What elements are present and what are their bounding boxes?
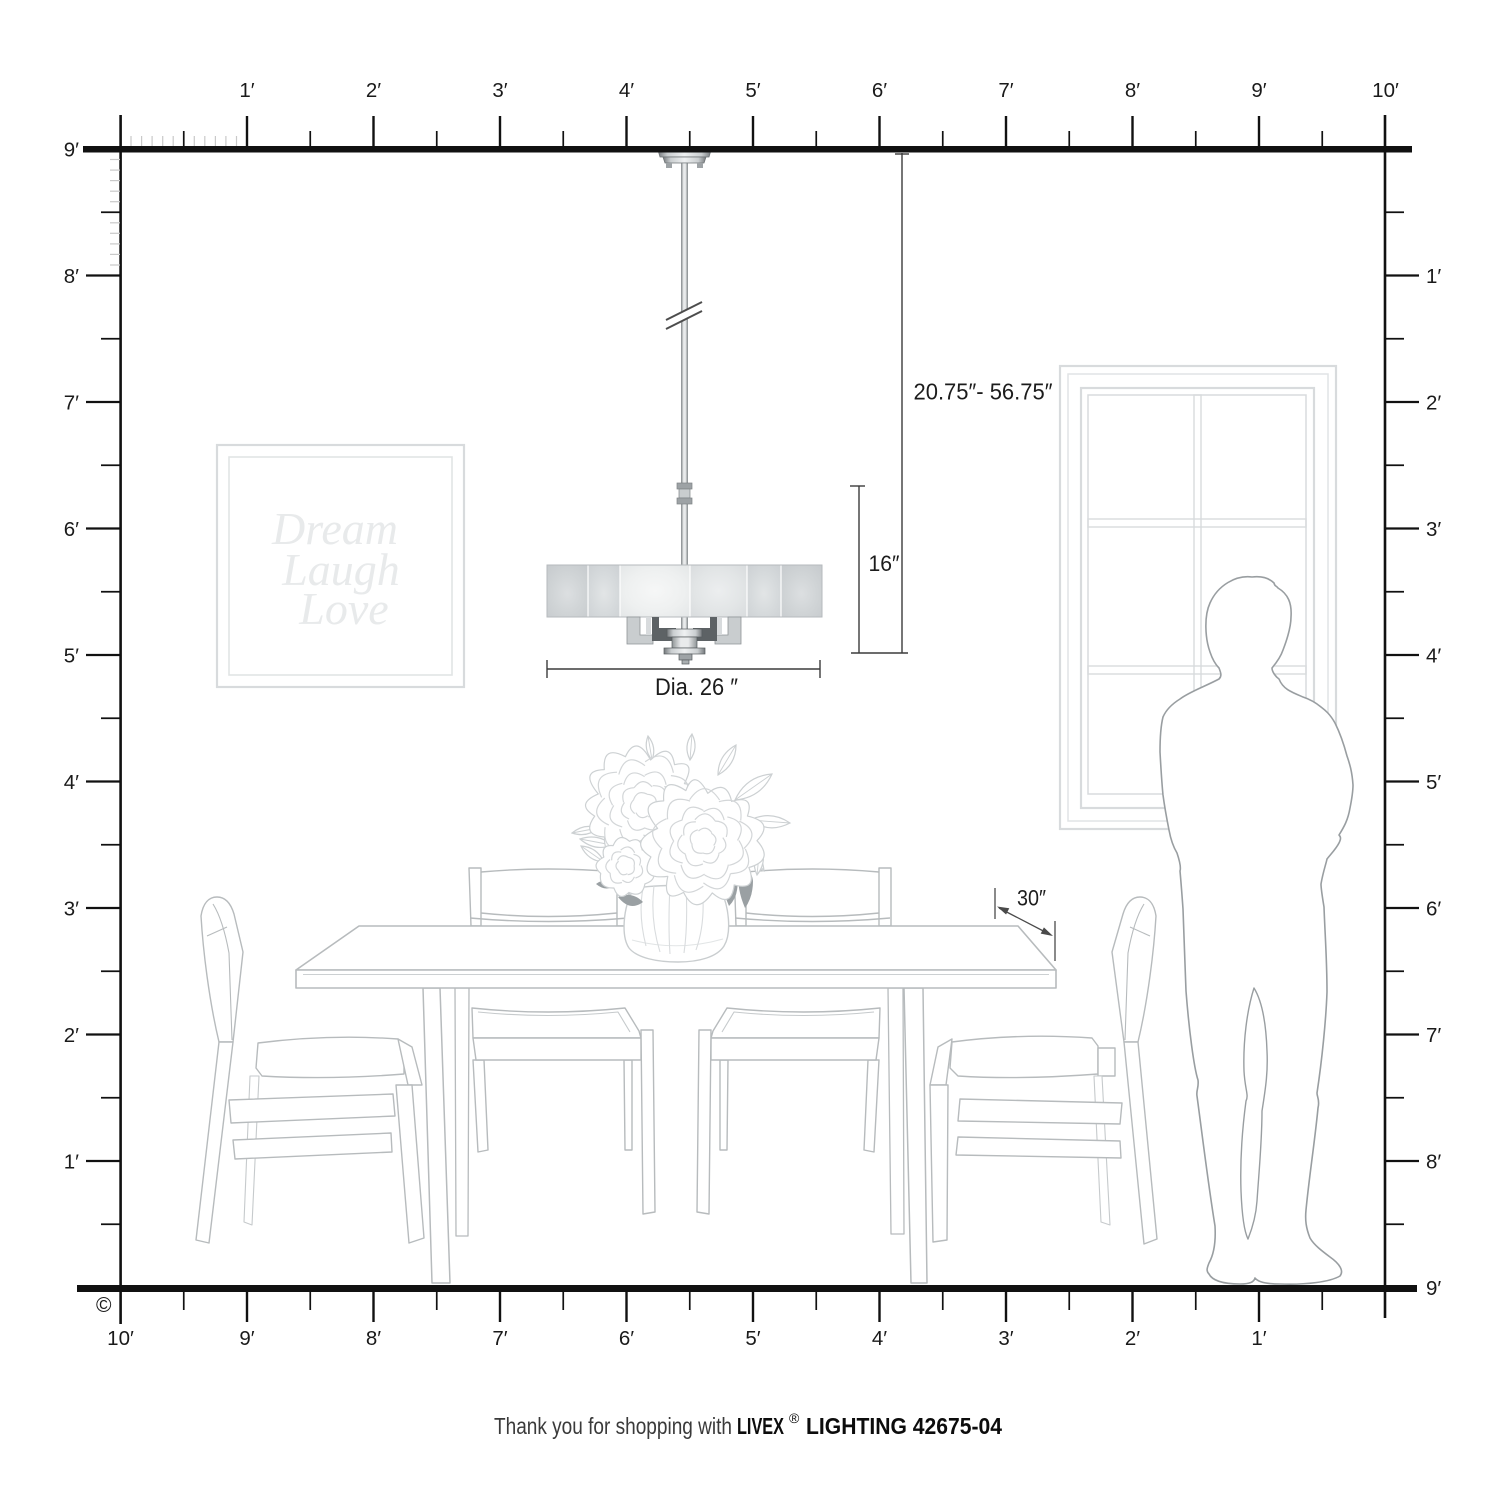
svg-text:1′: 1′ [64, 1151, 79, 1174]
svg-text:©: © [96, 1294, 112, 1317]
svg-text:LIGHTING 42675-04: LIGHTING 42675-04 [806, 1413, 1002, 1439]
svg-text:8′: 8′ [64, 265, 79, 288]
svg-text:5′: 5′ [64, 645, 79, 668]
svg-text:10′: 10′ [107, 1327, 134, 1350]
svg-text:Love: Love [298, 583, 388, 634]
svg-text:9′: 9′ [1251, 79, 1266, 102]
svg-text:4′: 4′ [64, 771, 79, 794]
svg-text:1′: 1′ [239, 79, 254, 102]
svg-text:30″: 30″ [1017, 886, 1046, 911]
svg-text:6′: 6′ [872, 79, 887, 102]
svg-text:9′: 9′ [1426, 1277, 1441, 1300]
svg-text:20.75″- 56.75″: 20.75″- 56.75″ [914, 379, 1053, 405]
svg-text:Dia. 26 ″: Dia. 26 ″ [655, 674, 738, 701]
svg-text:7′: 7′ [64, 392, 79, 415]
svg-text:3′: 3′ [64, 898, 79, 921]
svg-text:7′: 7′ [492, 1327, 507, 1350]
svg-text:5′: 5′ [1426, 771, 1441, 794]
svg-text:Thank you for shopping with: Thank you for shopping with [494, 1413, 732, 1439]
svg-text:9′: 9′ [64, 139, 79, 162]
svg-text:®: ® [789, 1410, 800, 1426]
svg-text:7′: 7′ [998, 79, 1013, 102]
svg-text:6′: 6′ [619, 1327, 634, 1350]
svg-text:9′: 9′ [239, 1327, 254, 1350]
svg-text:2′: 2′ [64, 1024, 79, 1047]
svg-text:5′: 5′ [745, 79, 760, 102]
svg-text:3′: 3′ [998, 1327, 1013, 1350]
svg-text:10′: 10′ [1372, 79, 1399, 102]
svg-text:7′: 7′ [1426, 1024, 1441, 1047]
svg-text:4′: 4′ [1426, 645, 1441, 668]
svg-text:2′: 2′ [366, 79, 381, 102]
svg-text:3′: 3′ [492, 79, 507, 102]
svg-text:5′: 5′ [745, 1327, 760, 1350]
svg-text:3′: 3′ [1426, 518, 1441, 541]
svg-text:8′: 8′ [1125, 79, 1140, 102]
svg-text:8′: 8′ [366, 1327, 381, 1350]
svg-text:2′: 2′ [1125, 1327, 1140, 1350]
svg-text:16″: 16″ [869, 551, 900, 576]
svg-text:6′: 6′ [1426, 898, 1441, 921]
svg-text:4′: 4′ [872, 1327, 887, 1350]
svg-text:1′: 1′ [1251, 1327, 1266, 1350]
svg-text:2′: 2′ [1426, 392, 1441, 415]
svg-text:LIVEX: LIVEX [737, 1413, 784, 1439]
svg-text:8′: 8′ [1426, 1151, 1441, 1174]
svg-text:6′: 6′ [64, 518, 79, 541]
svg-text:1′: 1′ [1426, 265, 1441, 288]
svg-text:4′: 4′ [619, 79, 634, 102]
